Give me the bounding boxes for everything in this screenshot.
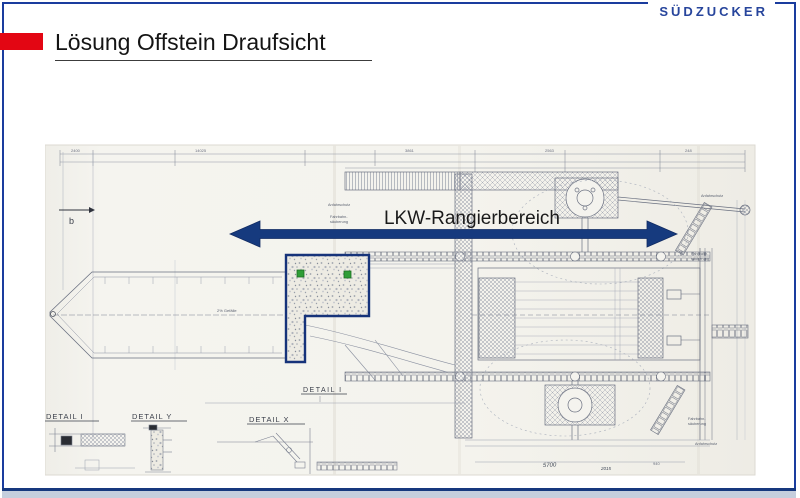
dim-number: 3861 bbox=[405, 148, 415, 153]
dim-number: 2015 bbox=[600, 466, 612, 471]
slide-border-top bbox=[2, 2, 648, 4]
slide-title: Lösung Offstein Draufsicht bbox=[55, 29, 326, 56]
dim-number: 2400 bbox=[71, 148, 81, 153]
ladder-right-horizontal bbox=[712, 325, 748, 338]
slope-label: 2% Gefälle bbox=[217, 308, 237, 313]
title-underline bbox=[55, 60, 372, 61]
footer-band bbox=[2, 491, 796, 498]
dim-number: 248 bbox=[685, 148, 692, 153]
arrow-label: LKW-Rangierbereich bbox=[384, 208, 560, 229]
green-marker bbox=[344, 271, 351, 278]
suedzucker-logo: SÜDZUCKER bbox=[653, 4, 774, 19]
drawing-svg: 2400 14025 3861 2563 248 b 2% Gefälle bbox=[45, 140, 757, 477]
slide-border-left bbox=[2, 2, 4, 496]
anfahrschutz-label: Anfahrschutz bbox=[695, 442, 717, 446]
fahrbahn-label: säuberung bbox=[688, 422, 706, 426]
slide-border-right bbox=[794, 2, 796, 491]
technical-drawing: 2400 14025 3861 2563 248 b 2% Gefälle bbox=[45, 140, 757, 477]
green-marker bbox=[297, 270, 304, 277]
dim-number: 5700 bbox=[543, 463, 557, 469]
section-letter: b bbox=[69, 216, 74, 226]
fahrbahn-label: Fahrbahn- bbox=[330, 215, 348, 219]
anfahrschutz-label: Anfahrschutz bbox=[328, 203, 350, 207]
dim-number: 940 bbox=[653, 461, 660, 466]
detail-x-label: DETAIL X bbox=[249, 415, 290, 424]
slide: { "slide": { "logo_text": "SÜDZUCKER", "… bbox=[0, 0, 800, 498]
detail-y-label: DETAIL Y bbox=[132, 412, 172, 421]
dim-number: 2563 bbox=[545, 148, 555, 153]
dim-number: 14025 bbox=[195, 148, 207, 153]
fahrbahn-label: Fahrbahn- bbox=[691, 252, 709, 256]
fahrbahn-label: säuberung bbox=[330, 220, 348, 224]
fahrbahn-label: säuberung bbox=[691, 257, 709, 261]
title-bullet-bar bbox=[0, 33, 43, 50]
slide-border-top-right bbox=[775, 2, 796, 4]
anfahrschutz-label: Anfahrschutz bbox=[701, 194, 723, 198]
detail-i2-label: DETAIL I bbox=[303, 387, 343, 394]
detail-i-label: DETAIL I bbox=[46, 412, 84, 421]
fahrbahn-label: Fahrbahn- bbox=[688, 417, 706, 421]
